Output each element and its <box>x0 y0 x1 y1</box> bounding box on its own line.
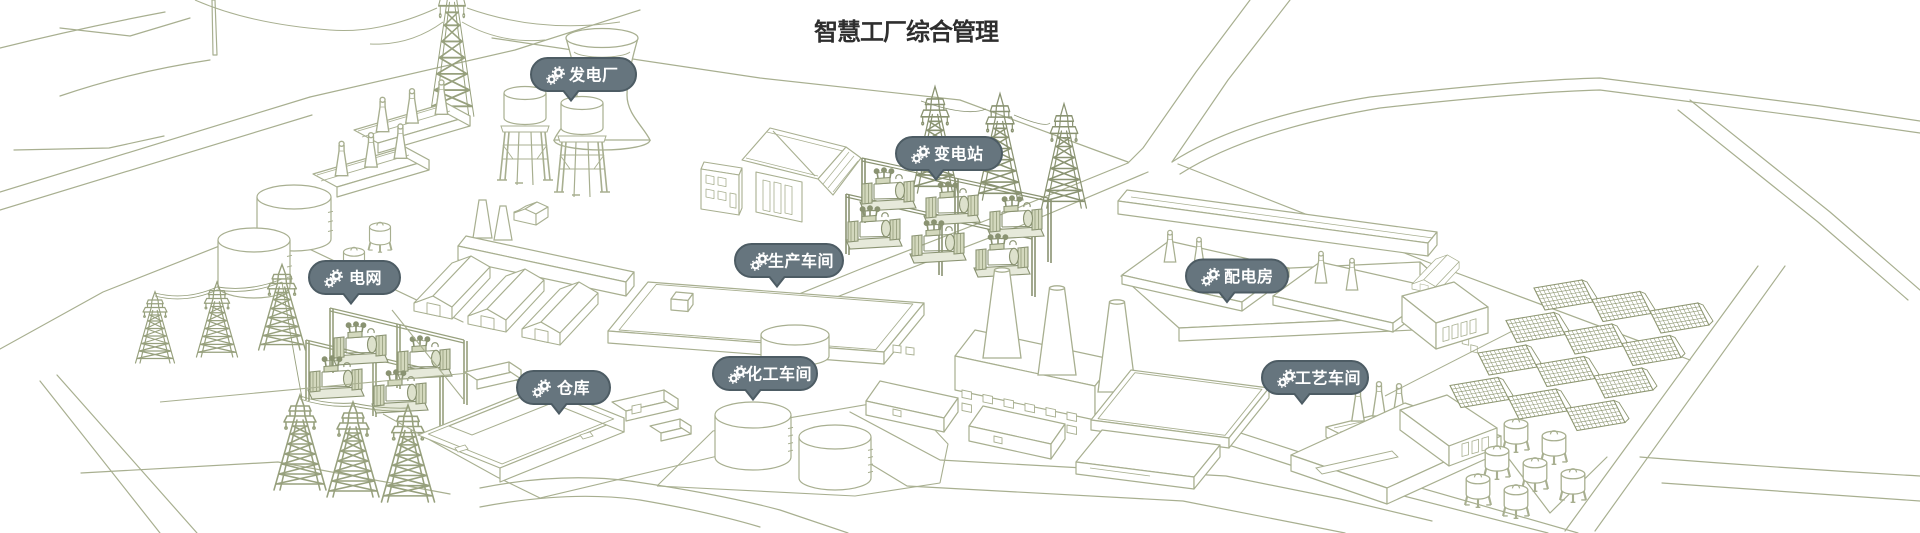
svg-text:化工车间: 化工车间 <box>746 365 812 384</box>
svg-text:生产车间: 生产车间 <box>768 252 834 271</box>
svg-text:仓库: 仓库 <box>556 379 590 398</box>
svg-text:发电厂: 发电厂 <box>568 66 619 85</box>
svg-text:工艺车间: 工艺车间 <box>1295 369 1361 388</box>
svg-text:配电房: 配电房 <box>1224 267 1274 286</box>
svg-text:变电站: 变电站 <box>934 145 984 164</box>
svg-text:电网: 电网 <box>349 269 382 288</box>
svg-text:智慧工厂综合管理: 智慧工厂综合管理 <box>814 18 999 46</box>
